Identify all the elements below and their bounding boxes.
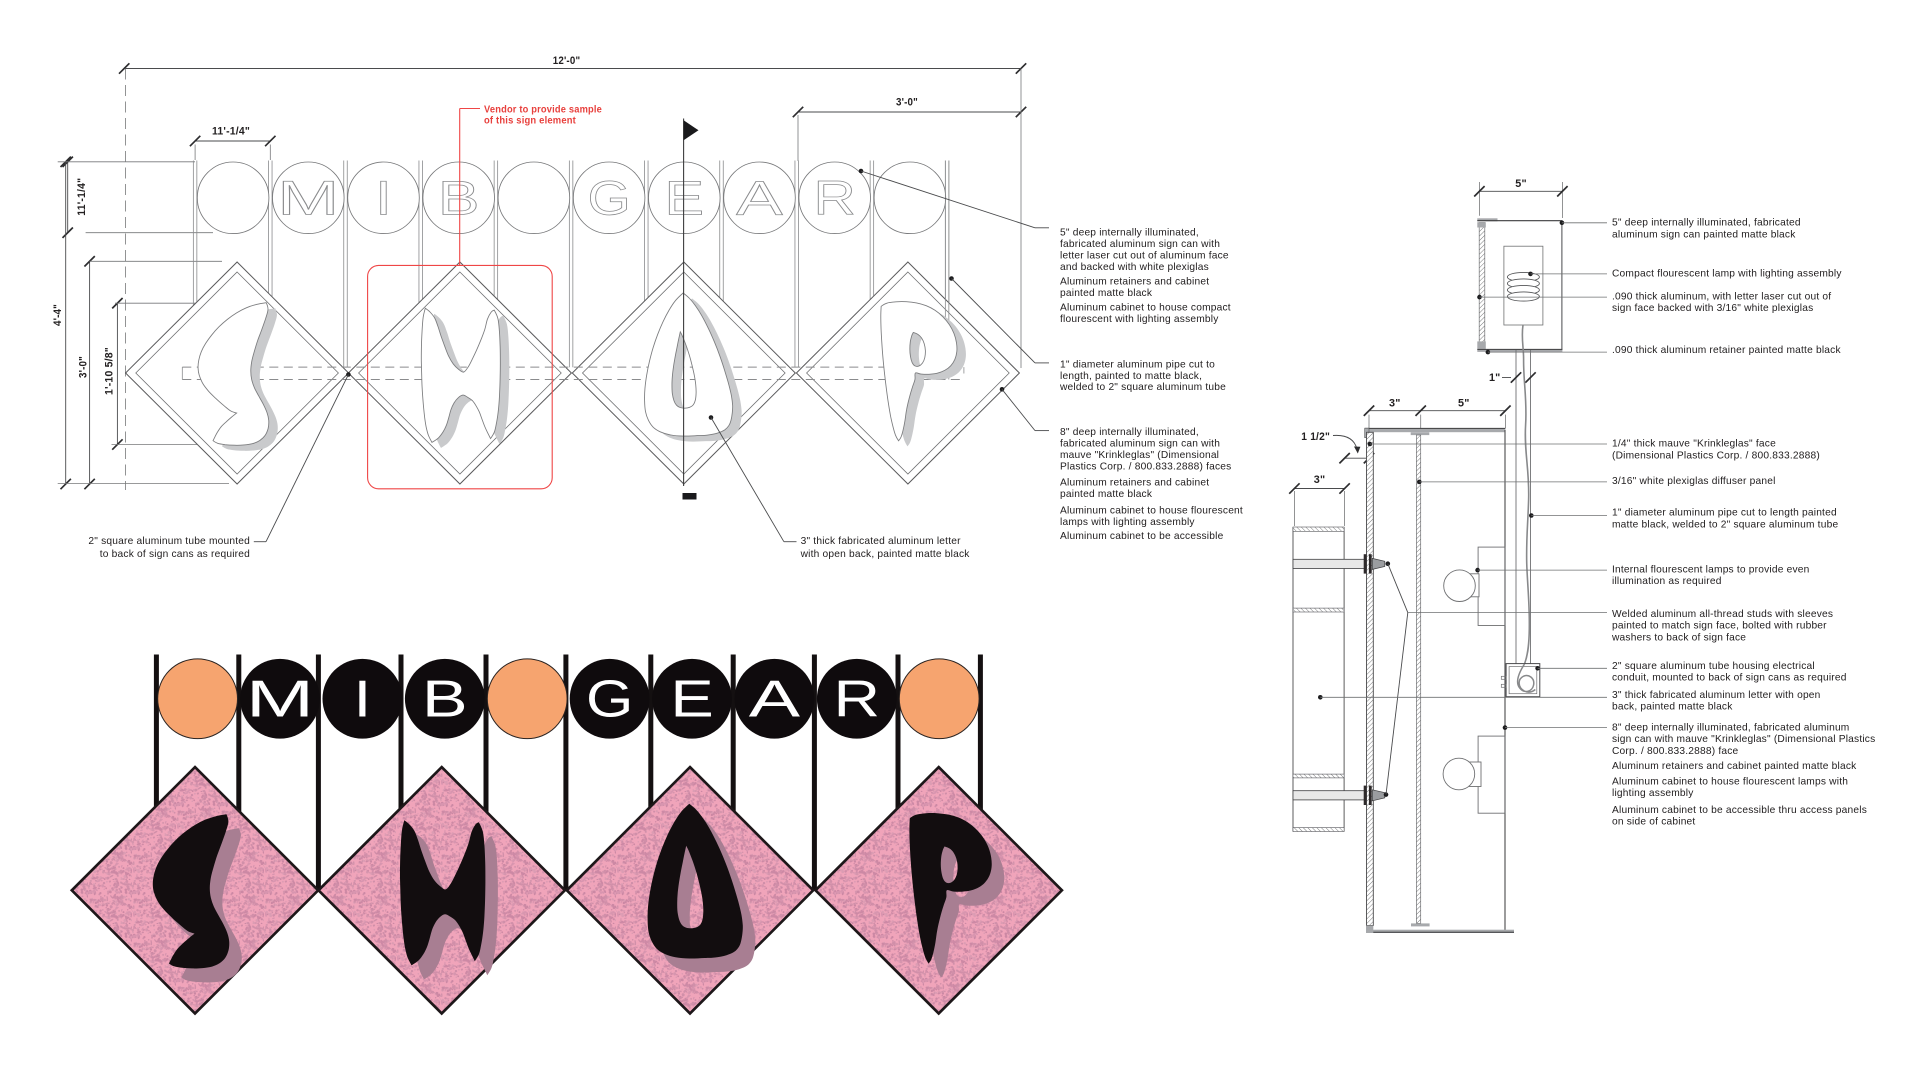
svg-text:and backed with white plexigla: and backed with white plexiglas <box>1060 262 1209 273</box>
svg-text:with open back, painted matte: with open back, painted matte black <box>800 549 971 560</box>
svg-text:12'-0": 12'-0" <box>553 55 581 67</box>
svg-text:matte black, welded to 2" squa: matte black, welded to 2" square aluminu… <box>1612 519 1838 530</box>
svg-text:5" deep internally illuminated: 5" deep internally illuminated, <box>1060 228 1199 239</box>
svg-text:1" diameter aluminum pipe cut: 1" diameter aluminum pipe cut to length … <box>1612 508 1837 519</box>
svg-text:8" deep internally illuminated: 8" deep internally illuminated, <box>1060 427 1199 438</box>
svg-text:conduit, mounted to back of si: conduit, mounted to back of sign cans as… <box>1612 673 1847 684</box>
svg-text:Internal flourescent lamps to: Internal flourescent lamps to provide ev… <box>1612 564 1810 575</box>
svg-text:welded to 2" square aluminum t: welded to 2" square aluminum tube <box>1059 382 1226 393</box>
svg-text:lamps with lighting assembly: lamps with lighting assembly <box>1060 517 1195 528</box>
svg-text:of this sign element: of this sign element <box>484 116 576 127</box>
svg-text:(Dimensional Plastics Corp. /: (Dimensional Plastics Corp. / 800.833.28… <box>1612 450 1820 461</box>
svg-text:3": 3" <box>1314 474 1326 486</box>
svg-text:fabricated aluminum sign can w: fabricated aluminum sign can with <box>1060 239 1220 250</box>
svg-text:B: B <box>422 670 468 728</box>
svg-text:length, painted to matte black: length, painted to matte black, <box>1060 371 1202 382</box>
svg-text:3'-0": 3'-0" <box>77 356 89 378</box>
svg-text:3" thick fabricated aluminum l: 3" thick fabricated aluminum letter <box>801 536 962 547</box>
svg-text:Aluminum cabinet to house flou: Aluminum cabinet to house flourescent <box>1060 505 1243 516</box>
svg-text:3": 3" <box>1389 398 1401 410</box>
svg-text:5" deep internally illuminated: 5" deep internally illuminated, fabricat… <box>1612 218 1801 229</box>
svg-text:G: G <box>586 670 633 728</box>
svg-text:2" square aluminum tube mounte: 2" square aluminum tube mounted <box>88 536 250 547</box>
svg-text:aluminum sign can painted matt: aluminum sign can painted matte black <box>1612 229 1796 240</box>
svg-text:flourescent with lighting asse: flourescent with lighting assembly <box>1060 314 1219 325</box>
svg-text:painted to match sign face, bo: painted to match sign face, bolted with … <box>1612 621 1827 632</box>
svg-text:Aluminum retainers and cabinet: Aluminum retainers and cabinet <box>1060 277 1209 288</box>
svg-text:1" diameter aluminum pipe cut: 1" diameter aluminum pipe cut to <box>1060 359 1215 370</box>
svg-text:5": 5" <box>1515 178 1527 190</box>
svg-text:painted matte black: painted matte black <box>1060 489 1153 500</box>
svg-text:1'-10 5/8": 1'-10 5/8" <box>103 347 115 395</box>
svg-text:fabricated aluminum sign can w: fabricated aluminum sign can with <box>1060 439 1220 450</box>
svg-text:11'-1/4": 11'-1/4" <box>76 178 88 216</box>
svg-text:G: G <box>588 171 631 225</box>
svg-text:Aluminum retainers and cabinet: Aluminum retainers and cabinet painted m… <box>1612 761 1857 772</box>
svg-text:5": 5" <box>1458 398 1470 410</box>
svg-text:sign face backed with 3/16" wh: sign face backed with 3/16" white plexig… <box>1612 303 1813 314</box>
svg-text:11'-1/4": 11'-1/4" <box>212 126 250 138</box>
svg-text:M: M <box>277 171 339 225</box>
svg-text:Aluminum retainers and cabinet: Aluminum retainers and cabinet <box>1060 478 1209 489</box>
svg-text:sign can with mauve "Krinklegl: sign can with mauve "Krinkleglas" (Dimen… <box>1612 734 1875 745</box>
svg-text:to back of sign cans as requir: to back of sign cans as required <box>100 549 250 560</box>
svg-text:3" thick fabricated aluminum l: 3" thick fabricated aluminum letter with… <box>1612 690 1821 701</box>
svg-text:Aluminum cabinet to house comp: Aluminum cabinet to house compact <box>1060 303 1231 314</box>
svg-text:1 1/2": 1 1/2" <box>1301 431 1330 443</box>
svg-text:R: R <box>814 172 856 225</box>
svg-text:M: M <box>246 670 314 728</box>
svg-text:4'-4": 4'-4" <box>52 304 64 326</box>
svg-text:I: I <box>375 171 391 225</box>
svg-text:Welded aluminum all-thread stu: Welded aluminum all-thread studs with sl… <box>1612 609 1833 620</box>
svg-text:Plastics Corp. / 800.833.2888: Plastics Corp. / 800.833.2888) faces <box>1060 461 1231 472</box>
svg-text:2" square aluminum tube housin: 2" square aluminum tube housing electric… <box>1612 661 1815 672</box>
svg-text:A: A <box>749 670 801 728</box>
svg-text:on side of cabinet: on side of cabinet <box>1612 817 1695 828</box>
svg-text:painted matte black: painted matte black <box>1060 288 1153 299</box>
svg-text:E: E <box>665 172 705 225</box>
svg-text:1/4" thick mauve "Krinkleglas": 1/4" thick mauve "Krinkleglas" face <box>1612 439 1776 450</box>
svg-text:3/16" white plexiglas diffuser: 3/16" white plexiglas diffuser panel <box>1612 476 1776 487</box>
svg-text:E: E <box>670 671 713 728</box>
svg-text:letter laser cut out of alumin: letter laser cut out of aluminum face <box>1060 251 1229 262</box>
svg-text:I: I <box>353 671 371 728</box>
svg-text:Aluminum cabinet to be accessi: Aluminum cabinet to be accessible <box>1060 531 1224 542</box>
svg-text:mauve "Krinkleglas" (Dimension: mauve "Krinkleglas" (Dimensional <box>1060 450 1219 461</box>
svg-text:washers to back of sign face: washers to back of sign face <box>1611 633 1746 644</box>
svg-text:A: A <box>736 171 783 225</box>
svg-text:B: B <box>438 171 480 224</box>
svg-text:Corp. / 800.833.2888) face: Corp. / 800.833.2888) face <box>1612 746 1739 757</box>
svg-text:R: R <box>834 671 881 729</box>
svg-text:.090 thick aluminum retainer p: .090 thick aluminum retainer painted mat… <box>1612 345 1841 356</box>
svg-text:.090 thick aluminum, with lett: .090 thick aluminum, with letter laser c… <box>1612 291 1831 302</box>
svg-text:illumination as required: illumination as required <box>1612 576 1722 587</box>
svg-text:lighting assembly: lighting assembly <box>1612 788 1694 799</box>
svg-text:3'-0": 3'-0" <box>896 97 918 109</box>
svg-text:back, painted matte black: back, painted matte black <box>1612 702 1733 713</box>
svg-text:Compact flourescent lamp with: Compact flourescent lamp with lighting a… <box>1612 269 1842 280</box>
svg-text:Aluminum cabinet to house flou: Aluminum cabinet to house flourescent la… <box>1612 776 1848 787</box>
svg-text:Aluminum cabinet to be accessi: Aluminum cabinet to be accessible thru a… <box>1612 805 1867 816</box>
svg-text:Vendor to provide sample: Vendor to provide sample <box>484 104 602 115</box>
svg-text:8" deep internally illuminated: 8" deep internally illuminated, fabricat… <box>1612 722 1850 733</box>
svg-text:1": 1" <box>1489 372 1501 384</box>
